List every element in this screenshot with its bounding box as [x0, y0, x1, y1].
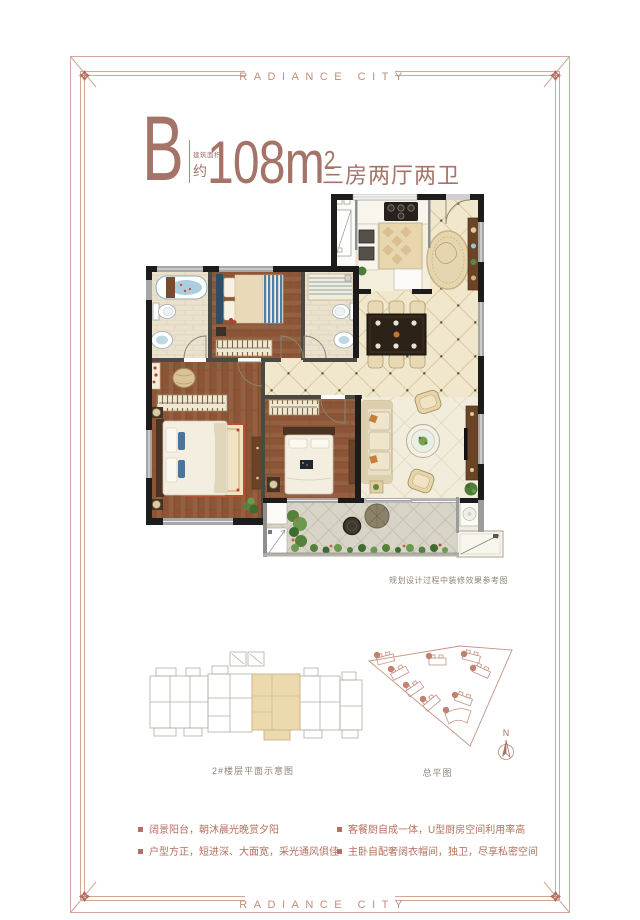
site-plan-caption: 总平图	[400, 766, 475, 779]
tv-icon	[464, 428, 468, 460]
feature-item: 主卧自配奢阔衣帽间，独卫，尽享私密空间	[337, 842, 538, 864]
feature-item: 户型方正，短进深、大面宽，采光通风俱佳	[138, 842, 337, 864]
feature-item: 客餐厨自成一体，U型厨房空间利用率高	[337, 820, 538, 842]
feature-text: 客餐厨自成一体，U型厨房空间利用率高	[348, 825, 525, 836]
stone-ottoman	[344, 518, 361, 535]
feature-item: 阔景阳台，朝沐晨光晚赏夕阳	[138, 820, 337, 842]
feature-text: 阔景阳台，朝沐晨光晚赏夕阳	[149, 825, 279, 836]
area-unit: m	[285, 129, 324, 196]
unit-letter: B	[142, 113, 184, 185]
sink-icon	[359, 247, 374, 260]
highlighted-unit	[252, 674, 300, 740]
bullet-square-icon	[138, 827, 143, 832]
entry-rug	[427, 231, 469, 289]
feature-text: 主卧自配奢阔衣帽间，独卫，尽享私密空间	[348, 847, 538, 858]
storage-box	[457, 531, 503, 557]
feature-list: 阔景阳台，朝沐晨光晚赏夕阳 客餐厨自成一体，U型厨房空间利用率高 户型方正，短进…	[138, 820, 516, 864]
bullet-square-icon	[138, 849, 143, 854]
compass-north-icon	[495, 739, 517, 763]
brochure-page: RADIANCE CITY RADIANCE CITY B 建筑面积 约 108…	[0, 0, 640, 920]
wardrobe	[269, 400, 319, 415]
title-divider	[189, 140, 190, 183]
area-number: 108	[207, 129, 285, 196]
bench	[173, 369, 195, 388]
bed-headboard	[283, 427, 335, 435]
site-plan	[363, 634, 515, 758]
floor-plan	[146, 194, 506, 562]
bed-duvet	[235, 275, 263, 323]
floor-schematic	[142, 646, 364, 756]
room-dining	[367, 301, 426, 368]
brand-bottom: RADIANCE CITY	[239, 899, 408, 911]
site-buildings	[376, 649, 492, 711]
bed-headboard	[216, 274, 223, 324]
sink-icon	[359, 230, 374, 243]
area-approx: 约	[193, 161, 207, 181]
compass: N	[495, 728, 517, 768]
brand-top: RADIANCE CITY	[239, 71, 408, 83]
bullet-square-icon	[337, 849, 342, 854]
feature-text: 户型方正，短进深、大面宽，采光通风俱佳	[149, 847, 339, 858]
bullet-square-icon	[337, 827, 342, 832]
compass-north-label: N	[495, 728, 517, 738]
floor-schematic-caption: 2#楼层平面示意图	[162, 764, 344, 777]
plant-icon	[465, 483, 478, 496]
area-value: 108m2	[207, 136, 335, 187]
layout-type: 三房两厅两卫	[322, 158, 460, 190]
plan-note: 规划设计过程中装修效果参考图	[308, 575, 508, 586]
